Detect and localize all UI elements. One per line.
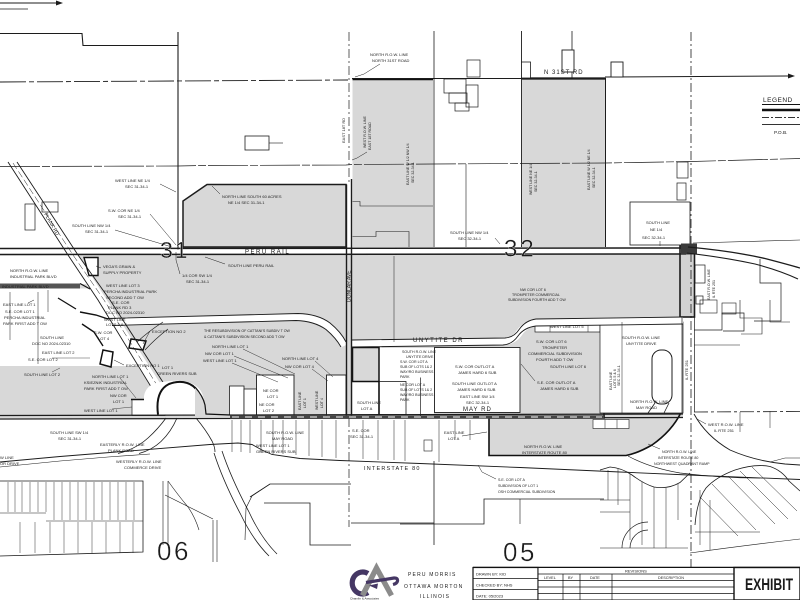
svg-text:LOT A: LOT A <box>361 406 373 411</box>
svg-text:LOT A: LOT A <box>448 436 460 441</box>
svg-text:PERCHA INDUSTRIAL PARK: PERCHA INDUSTRIAL PARK <box>104 289 157 294</box>
svg-text:SOUTH LINE LOT 2: SOUTH LINE LOT 2 <box>24 372 61 377</box>
svg-text:JAMES HARD 6 SUB: JAMES HARD 6 SUB <box>458 370 497 375</box>
svg-text:NORTH LINE SOUTH 60 ACRES: NORTH LINE SOUTH 60 ACRES <box>222 194 282 199</box>
svg-text:EAST LINE LOT 1: EAST LINE LOT 1 <box>3 302 36 307</box>
svg-text:JAMES HARD 6 SUB: JAMES HARD 6 SUB <box>457 387 496 392</box>
svg-text:& CATTANI'S SUBDIVISION SECOND: & CATTANI'S SUBDIVISION SECOND ADD T OW <box>204 335 285 339</box>
svg-text:SEC 31-34-1: SEC 31-34-1 <box>186 279 210 284</box>
svg-text:NORTH LINE LOT 1: NORTH LINE LOT 1 <box>212 344 249 349</box>
svg-text:NORTHWEST QUADRANT RAMP: NORTHWEST QUADRANT RAMP <box>654 462 710 466</box>
svg-text:SEC 31-34-1: SEC 31-34-1 <box>350 434 374 439</box>
svg-text:WAY/RO BUSINESS: WAY/RO BUSINESS <box>400 393 434 397</box>
svg-text:DOC NO 2024-02310: DOC NO 2024-02310 <box>106 310 145 315</box>
svg-text:PERU RAIL: PERU RAIL <box>245 250 290 256</box>
svg-text:EAST LINE: EAST LINE <box>298 391 302 410</box>
svg-text:PARK: PARK <box>400 375 410 379</box>
svg-text:05: 05 <box>503 537 537 567</box>
svg-text:MAY ROAD: MAY ROAD <box>272 436 293 441</box>
svg-text:S.E. COR LOT 2: S.E. COR LOT 2 <box>28 357 58 362</box>
svg-text:KSIEZNIK INDUSTRIAL: KSIEZNIK INDUSTRIAL <box>84 380 128 385</box>
svg-text:WESTERLY R.O.W. LINE: WESTERLY R.O.W. LINE <box>116 459 162 464</box>
svg-text:SOUTH LINE PERU RAIL: SOUTH LINE PERU RAIL <box>228 263 275 268</box>
svg-text:EXCEPTION NO 1: EXCEPTION NO 1 <box>126 363 160 368</box>
svg-text:SOUTH LINE: SOUTH LINE <box>646 220 670 225</box>
svg-text:TROMPETER: TROMPETER <box>542 345 567 350</box>
svg-text:SUB OF LOTS 1& 2: SUB OF LOTS 1& 2 <box>400 365 432 369</box>
svg-text:LOT 1: LOT 1 <box>113 399 125 404</box>
svg-text:OTTAWA MORTON: OTTAWA MORTON <box>404 584 463 590</box>
svg-text:EXHIBIT: EXHIBIT <box>745 575 793 594</box>
svg-text:SEC 32-34-1: SEC 32-34-1 <box>592 167 596 188</box>
svg-text:NW COR LOT 1: NW COR LOT 1 <box>205 351 235 356</box>
svg-text:IL RTE 251: IL RTE 251 <box>712 280 716 298</box>
svg-text:FOURTH ADD T OW: FOURTH ADD T OW <box>536 357 574 362</box>
svg-text:JAMES HARD 6 SUB: JAMES HARD 6 SUB <box>540 386 579 391</box>
svg-text:S.W. COR OUTLOT A: S.W. COR OUTLOT A <box>455 364 495 369</box>
svg-text:LOTS 3 & 4: LOTS 3 & 4 <box>106 322 128 327</box>
svg-text:P.O.B.: P.O.B. <box>774 130 788 136</box>
svg-text:SOUTH LINE OUTLOT A: SOUTH LINE OUTLOT A <box>452 381 497 386</box>
svg-text:OSH COMMERCIAL SUBDIVISION: OSH COMMERCIAL SUBDIVISION <box>498 490 556 494</box>
svg-text:TROMPETER COMMERCIAL: TROMPETER COMMERCIAL <box>512 293 560 297</box>
svg-text:SOUTH LINE NW 1/4: SOUTH LINE NW 1/4 <box>450 230 489 235</box>
svg-text:SEC 31-34-1: SEC 31-34-1 <box>125 184 149 189</box>
svg-text:LOT 4: LOT 4 <box>320 398 324 408</box>
svg-text:Chamlin & Associates: Chamlin & Associates <box>350 597 380 600</box>
svg-text:EAST LINE: EAST LINE <box>444 430 465 435</box>
svg-text:UNYTITE DRIVE: UNYTITE DRIVE <box>406 355 434 359</box>
svg-text:NORTH R.O.W. LINE: NORTH R.O.W. LINE <box>10 268 48 273</box>
svg-text:WEST LINE LOT 3: WEST LINE LOT 3 <box>106 283 140 288</box>
svg-text:DOC NO 2024-02310: DOC NO 2024-02310 <box>32 341 71 346</box>
svg-text:WEST LINE NE 1/4: WEST LINE NE 1/4 <box>115 178 151 183</box>
svg-text:WEST LINE LOT 5: WEST LINE LOT 5 <box>550 324 584 329</box>
svg-text:INTERSTATE ROUTE 80: INTERSTATE ROUTE 80 <box>522 450 568 455</box>
svg-text:LOT 1: LOT 1 <box>303 398 307 408</box>
svg-text:IL RTE 251: IL RTE 251 <box>684 359 689 380</box>
svg-text:INDUSTRIAL PARK BLVD: INDUSTRIAL PARK BLVD <box>10 274 57 279</box>
svg-text:S.E. COR LOT A: S.E. COR LOT A <box>498 478 525 482</box>
svg-text:SOUTH LINE: SOUTH LINE <box>357 400 381 405</box>
svg-text:MAY RD: MAY RD <box>463 407 492 413</box>
svg-text:INDUSTRIAL PARK BLVD: INDUSTRIAL PARK BLVD <box>2 284 49 289</box>
svg-text:SOUTH LINE: SOUTH LINE <box>40 335 64 340</box>
svg-text:SOUTH LINE SW 1/4: SOUTH LINE SW 1/4 <box>50 430 89 435</box>
svg-text:SOUTH LINE NW 1/4: SOUTH LINE NW 1/4 <box>72 223 111 228</box>
svg-text:S.E. COR LOT 1: S.E. COR LOT 1 <box>5 309 35 314</box>
svg-text:DONLAR AVE: DONLAR AVE <box>347 270 353 302</box>
svg-text:SOUTH R.O.W. LINE: SOUTH R.O.W. LINE <box>622 335 660 340</box>
svg-text:EAST LINE W 1/2 NE 1/4: EAST LINE W 1/2 NE 1/4 <box>587 149 591 190</box>
svg-text:NORTH LINE LOT 4: NORTH LINE LOT 4 <box>282 356 319 361</box>
svg-text:THE RESUBDIVISION OF CATTANI'S: THE RESUBDIVISION OF CATTANI'S SUBDIV T … <box>204 329 290 333</box>
svg-text:IL RTE 251: IL RTE 251 <box>714 428 735 433</box>
svg-text:CHECKED BY: NHS: CHECKED BY: NHS <box>476 583 513 588</box>
svg-text:NORTH R.O.W. LINE: NORTH R.O.W. LINE <box>630 399 668 404</box>
svg-text:NORTH LINE LOT 1: NORTH LINE LOT 1 <box>92 374 129 379</box>
svg-text:SUPPLY PROPERTY: SUPPLY PROPERTY <box>103 270 142 275</box>
svg-text:EASTERLY R.O.W. LINE: EASTERLY R.O.W. LINE <box>100 442 145 447</box>
svg-text:DESCRIPTION: DESCRIPTION <box>658 576 684 580</box>
svg-text:OR DRIVE: OR DRIVE <box>0 461 20 466</box>
svg-text:PARK FIRST ADD T OW: PARK FIRST ADD T OW <box>84 386 128 391</box>
svg-text:N 31ST RD: N 31ST RD <box>544 70 584 76</box>
svg-text:S.W. COR LOT 6: S.W. COR LOT 6 <box>536 339 567 344</box>
svg-text:SUB OF LOTS 1& 2: SUB OF LOTS 1& 2 <box>400 388 432 392</box>
svg-text:S.E. COR OUTLOT A: S.E. COR OUTLOT A <box>537 380 576 385</box>
svg-text:NW COR: NW COR <box>110 393 127 398</box>
svg-text:VEGA'S GRAIN &: VEGA'S GRAIN & <box>103 264 135 269</box>
svg-text:INTERSTATE ROUTE 80: INTERSTATE ROUTE 80 <box>658 456 698 460</box>
svg-text:COMMERCIAL SUBDIVISION: COMMERCIAL SUBDIVISION <box>528 351 582 356</box>
svg-text:EAST LINE W 1/2 NW 1/4: EAST LINE W 1/2 NW 1/4 <box>406 143 410 185</box>
svg-text:LOT 4: LOT 4 <box>98 336 110 341</box>
svg-text:PARK FIRST ADD T OW: PARK FIRST ADD T OW <box>3 321 47 326</box>
svg-text:NE COR LOT A: NE COR LOT A <box>400 383 426 387</box>
svg-text:REVISIONS: REVISIONS <box>625 569 647 574</box>
svg-text:NORTH R.O.W. LINE: NORTH R.O.W. LINE <box>524 444 562 449</box>
svg-text:INTERSTATE 80: INTERSTATE 80 <box>364 466 421 472</box>
svg-text:NORTH R.O.W. LINE: NORTH R.O.W. LINE <box>370 52 408 57</box>
svg-text:W LINE: W LINE <box>0 455 14 460</box>
svg-text:SOUTH R.O.W. LINE: SOUTH R.O.W. LINE <box>266 430 304 435</box>
svg-text:WEST LINE NE 1/4: WEST LINE NE 1/4 <box>529 164 533 195</box>
svg-text:06: 06 <box>157 536 191 566</box>
svg-text:SEC 31-34-1: SEC 31-34-1 <box>85 229 109 234</box>
svg-text:ILLINOIS: ILLINOIS <box>420 594 450 600</box>
svg-text:SEC 31-34-1: SEC 31-34-1 <box>118 214 142 219</box>
svg-text:SUBDIVISION FOURTH ADD T OW: SUBDIVISION FOURTH ADD T OW <box>508 298 566 302</box>
svg-text:NE 1/4 SEC 31-34-1: NE 1/4 SEC 31-34-1 <box>228 200 265 205</box>
svg-text:S.W. COR NE 1/4: S.W. COR NE 1/4 <box>108 208 141 213</box>
svg-text:DATE: 05/2023: DATE: 05/2023 <box>476 594 504 599</box>
svg-text:NORTH 31ST ROAD: NORTH 31ST ROAD <box>372 58 410 63</box>
svg-text:UNYTITE DR: UNYTITE DR <box>413 338 464 344</box>
svg-text:SUBDIVISION OF LOT 1: SUBDIVISION OF LOT 1 <box>498 484 538 488</box>
svg-text:LOT 2: LOT 2 <box>263 408 275 413</box>
svg-text:NE 1/4: NE 1/4 <box>650 227 663 232</box>
svg-text:SOUTH R.O.W. LINE: SOUTH R.O.W. LINE <box>402 350 437 354</box>
svg-text:BY: BY <box>568 576 574 580</box>
svg-text:EAST R.O.W. LINE: EAST R.O.W. LINE <box>707 269 711 300</box>
svg-text:S.W. COR: S.W. COR <box>94 330 113 335</box>
svg-text:WEST R.O.W. LINE: WEST R.O.W. LINE <box>363 116 367 148</box>
svg-text:SEC 31-34-1: SEC 31-34-1 <box>58 436 82 441</box>
svg-text:WAY/RO BUSINESS: WAY/RO BUSINESS <box>400 370 434 374</box>
svg-text:MAY ROAD: MAY ROAD <box>636 405 657 410</box>
svg-text:SEC 32-34-1: SEC 32-34-1 <box>617 365 621 386</box>
svg-text:EAST LINE LOT 2: EAST LINE LOT 2 <box>42 350 75 355</box>
svg-text:WEST LINE LOT 1: WEST LINE LOT 1 <box>256 443 290 448</box>
svg-text:31: 31 <box>160 237 190 263</box>
svg-text:SEC 32-34-1: SEC 32-34-1 <box>458 236 482 241</box>
svg-text:EAST 18T ROAD: EAST 18T ROAD <box>368 122 372 150</box>
svg-text:WEST LINE: WEST LINE <box>315 390 319 410</box>
svg-text:LOT 1: LOT 1 <box>267 394 279 399</box>
svg-text:UNYTITE DRIVE: UNYTITE DRIVE <box>626 341 657 346</box>
svg-text:SEC 32-34-1: SEC 32-34-1 <box>642 235 666 240</box>
svg-text:LEVEL: LEVEL <box>544 576 556 580</box>
svg-text:NORTH R.O.W. LINE: NORTH R.O.W. LINE <box>662 450 697 454</box>
svg-text:NE COR: NE COR <box>259 402 275 407</box>
svg-text:PERU MORRIS: PERU MORRIS <box>408 572 456 578</box>
svg-text:PARK: PARK <box>400 398 410 402</box>
svg-text:NE COR: NE COR <box>263 388 279 393</box>
svg-text:WEST LINE LOT 1: WEST LINE LOT 1 <box>203 358 237 363</box>
svg-text:LEGEND: LEGEND <box>763 97 793 104</box>
svg-text:PERCHA INDUSTRIAL: PERCHA INDUSTRIAL <box>4 315 46 320</box>
svg-text:SEC 32-34-1: SEC 32-34-1 <box>534 171 538 192</box>
svg-text:SOUTH LINE LOT 6: SOUTH LINE LOT 6 <box>550 364 587 369</box>
svg-text:SEC 32-34-1: SEC 32-34-1 <box>466 400 490 405</box>
svg-text:DRAWN BY: KID: DRAWN BY: KID <box>476 572 506 577</box>
svg-text:SEC 32-34-1: SEC 32-34-1 <box>411 162 415 183</box>
svg-text:COMMERCE DRIVE: COMMERCE DRIVE <box>124 465 161 470</box>
svg-text:S.E. COR: S.E. COR <box>352 428 370 433</box>
svg-text:WEST R.O.W. LINE: WEST R.O.W. LINE <box>708 422 744 427</box>
svg-text:EXCEPTION NO 2: EXCEPTION NO 2 <box>152 329 186 334</box>
svg-text:NW COR LOT 6: NW COR LOT 6 <box>520 288 546 292</box>
svg-text:S.W. COR LOT A: S.W. COR LOT A <box>400 360 428 364</box>
svg-text:32: 32 <box>504 236 537 263</box>
svg-text:LOT 1: LOT 1 <box>162 365 174 370</box>
svg-text:EAST 18T RD: EAST 18T RD <box>341 118 346 143</box>
svg-text:1/4 COR SW 1/4: 1/4 COR SW 1/4 <box>182 273 213 278</box>
svg-text:GREEN RIVERS SUB: GREEN RIVERS SUB <box>157 371 197 376</box>
svg-text:PLANK ROAD: PLANK ROAD <box>108 448 134 453</box>
svg-text:NW COR LOT 4: NW COR LOT 4 <box>285 364 315 369</box>
svg-text:DATE: DATE <box>590 576 600 580</box>
svg-text:EAST LINE SW 1/4: EAST LINE SW 1/4 <box>460 394 495 399</box>
